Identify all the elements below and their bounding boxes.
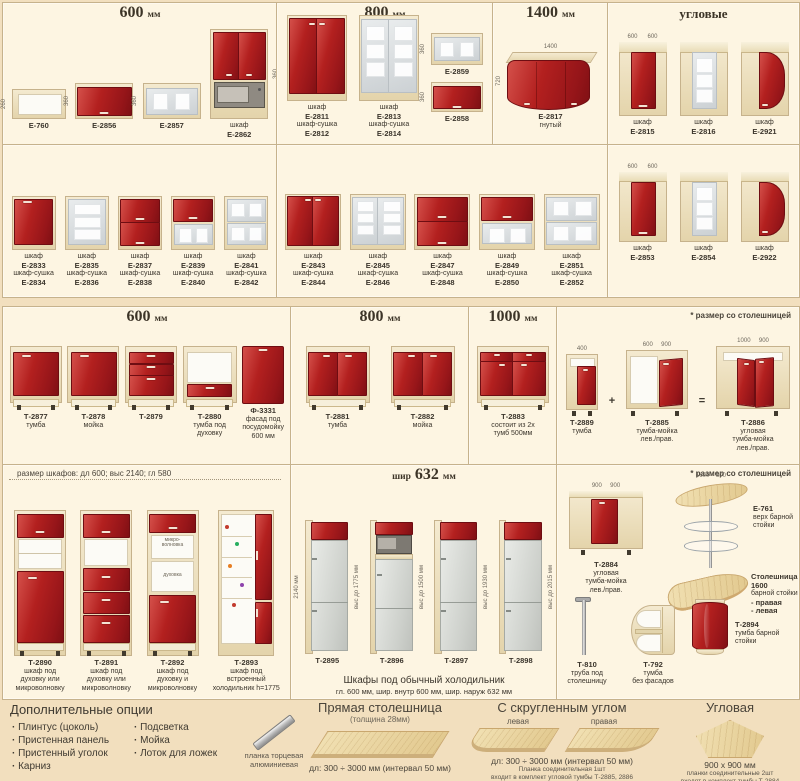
Е-2862-label: шкафЕ-2862 [227,122,251,140]
panel-header-bar-corner: * размер со столешницей [557,466,799,478]
panel-header-base-1000: 1000 мм [469,308,557,326]
Е-2851-image [544,194,600,250]
panel-header-wall-600: 600 мм [3,4,277,22]
Т-2878-image [67,346,119,410]
straight-countertop-range: дл: 300 ÷ 3000 мм (интервал 50 мм) [300,763,460,773]
Т-2894-image [691,599,729,655]
catalog-item-Т-2886: 1000 900Т-2886угловаятумба-мойкалев./пра… [716,346,790,455]
Е-2835-label: шкафЕ-2835шкаф-сушкаЕ-2836 [67,253,108,289]
Е-2849-image [479,194,535,250]
catalog-item-Е-2817: 7201400Е-2817гнутый [507,52,595,131]
catalog-item-Е-2816: шкафЕ-2816 [680,42,728,137]
Т-792-label: Т-792тумбабез фасадов [623,661,683,687]
Е-2843-label: шкафЕ-2843шкаф-сушкаЕ-2844 [293,253,334,289]
catalog-item-Е-2839: шкафЕ-2839шкаф-сушкаЕ-2840 [171,196,215,289]
Т-2879-image [125,346,177,410]
panel-wall-800: 800 ммшкафЕ-2811шкаф-сушкаЕ-2812шкафЕ-28… [276,2,494,146]
Т-2881-image [306,346,370,410]
Т-2896-label: Т-2896 [380,657,404,667]
Е-2858-image: 360 [431,82,483,112]
Е-2837-image [118,196,162,250]
panel-fridge-cabinets: шир 632 мм2140 ммвыс до 1775 ммТ-2895выс… [290,464,558,700]
panel-wall-1400: 1400 мм7201400Е-2817гнутый [492,2,609,146]
catalog-item-Е-760: 260Е-760 [12,89,66,140]
panel-header-base-800: 800 мм [291,308,469,326]
Т-2877-image [10,346,62,410]
corner-countertop-note2: входят в комплект тумбы Т-2884 [664,778,796,781]
catalog-item-Е-2851: шкафЕ-2851шкаф-сушкаЕ-2852 [544,194,600,289]
Е-2843-image [285,194,341,250]
Т-810-image [573,597,593,655]
corner-countertop-title: Угловая [664,700,796,715]
Е-2837-label: шкафЕ-2837шкаф-сушкаЕ-2838 [120,253,161,289]
Е-2862-image: 360 [210,29,268,119]
Е-2841-image [224,196,268,250]
Т-2880-label: Т-2880тумба поддуховку [193,413,226,441]
Т-2891-label: Т-2891шкаф поддуховку илимикроволновку [82,659,131,695]
Е-2815-label: шкафЕ-2815 [630,119,654,137]
Т-2884-image: 900 900 [569,491,643,555]
catalog-page: Дополнительные опции Плинтус (цоколь)При… [0,0,800,781]
panel-corner-row2: 600 600шкафЕ-2853шкафЕ-2854шкафЕ-2922 [607,144,800,298]
Т-810-label: Т-810труба подстолешницу [559,661,615,687]
bottom-options-strip: Дополнительные опции Плинтус (цоколь)При… [0,700,800,781]
Е-2847-image [414,194,470,250]
rounded-left-countertop-image [465,728,560,752]
panel-base-600: 600 ммТ-2877тумбаТ-2878мойкаТ-2879Т-2880… [2,306,292,466]
Т-2893-label: Т-2893шкаф подвстроенныйхолодильник h=17… [213,659,280,695]
Т-2879-label: Т-2879 [139,413,163,441]
catalog-item-Е-2857: 360Е-2857 [143,83,201,140]
Е-760-image: 260 [12,89,66,119]
catalog-item-Т-2898: выс до 2015 ммТ-2898 [499,520,543,667]
catalog-item-Т-2881: Т-2881тумба [306,346,370,441]
Е-760-label: Е-760 [29,122,49,140]
Т-2898-image: выс до 2015 мм [499,520,543,654]
Т-2897-label: Т-2897 [444,657,468,667]
panel-wall-800-row2: шкафЕ-2843шкаф-сушкаЕ-2844шкафЕ-2845шкаф… [276,144,609,298]
catalog-item-Т-2889: 400Т-2889тумба [566,354,598,455]
Е-761-label: Е-761верх барнойстойки [753,505,797,531]
rounded-countertop-section: С скругленным углом левая правая дл: 300… [462,700,662,781]
catalog-item-Е-2853: 600 600шкафЕ-2853 [619,172,667,263]
panel-base-800: 800 ммТ-2881тумбаТ-2882мойка [290,306,470,466]
Е-2816-image [680,42,728,116]
Т-2897-image: выс до 1930 мм [434,520,478,654]
catalog-item-Е-2858: 360Е-2858 [431,82,483,124]
catalog-item-Е-2845: шкафЕ-2845шкаф-сушкаЕ-2846 [350,194,406,289]
rounded-left-label: левая [507,717,529,726]
Е-2854-image [680,172,728,242]
Т-2885-image: 600 900 [626,350,688,416]
catalog-item-Е-2849: шкафЕ-2849шкаф-сушкаЕ-2850 [479,194,535,289]
panel-header-corner-base: * размер со столешницей [557,308,799,320]
corner-countertop-image [696,720,764,758]
catalog-item-Е-2856: 360Е-2856 [75,83,133,140]
panel-bar-corner: * размер со столешницей900 900Т-2884угло… [556,464,800,700]
Т-2886-label: Т-2886угловаятумба-мойкалев./прав. [732,419,773,455]
catalog-item-Е-2813: шкафЕ-2813шкаф-сушкаЕ-2814 [359,15,419,140]
catalog-item-Т-2880: Т-2880тумба поддуховку [183,346,237,441]
Т-2885-label: Т-2885тумба-мойкалев./прав. [636,419,677,455]
Е-2856-label: Е-2856 [92,122,116,140]
Ф-3331-image [242,346,284,404]
Т-792-image [631,605,675,655]
Е-2841-label: шкафЕ-2841шкаф-сушкаЕ-2842 [226,253,267,289]
Е-2835-image [65,196,109,250]
Е-2811-image [287,15,347,101]
panel-header-wall-corner: угловые [608,4,799,22]
Е-2813-image [359,15,419,101]
Т-2898-label: Т-2898 [509,657,533,667]
panel-header-base-600: 600 мм [3,308,291,326]
catalog-item-Т-2883: Т-2883состоит из 2хтумб 500мм [477,346,549,441]
alu-strip-image [248,714,300,750]
Е-2922-label: шкафЕ-2922 [752,245,776,263]
corner-countertop-note1: планки соединительные 2шт [664,770,796,778]
catalog-item-Е-2859: 360Е-2859 [431,33,483,77]
Е-2815-image: 600 600 [619,42,667,116]
extras-column-2: ПодсветкаМойкаЛоток для ложек [134,721,217,760]
catalog-item-Е-2843: шкафЕ-2843шкаф-сушкаЕ-2844 [285,194,341,289]
panel-tall-cabinets: размер шкафов: дл 600; выс 2140; гл 580Т… [2,464,292,700]
catalog-item-Т-2896: выс до 1500 ммТ-2896 [370,520,414,667]
Е-2816-label: шкафЕ-2816 [691,119,715,137]
catalog-item-Е-2854: шкафЕ-2854 [680,172,728,263]
Е-2817-label: Е-2817гнутый [538,113,562,131]
option-item: Плинтус (цоколь) [12,721,109,734]
catalog-item-Т-2877: Т-2877тумба [10,346,62,441]
Т-2882-label: Т-2882мойка [411,413,435,441]
Е-2859-label: Е-2859 [445,68,469,77]
panel-wall-600: 600 мм260Е-760360Е-2856360Е-2857360шкафЕ… [2,2,278,146]
extras-title: Дополнительные опции [10,702,153,717]
catalog-item-Т-2879: Т-2879 [125,346,177,441]
catalog-item-Т-2892: микро-волновкадуховкаТ-2892шкаф поддухов… [147,510,199,695]
Т-2883-label: Т-2883состоит из 2хтумб 500мм [491,413,535,441]
Е-2853-label: шкафЕ-2853 [630,245,654,263]
catalog-item-Т-2882: Т-2882мойка [391,346,455,441]
straight-countertop-image [311,731,450,758]
catalog-item-Е-2847: шкафЕ-2847шкаф-сушкаЕ-2848 [414,194,470,289]
Е-2839-image [171,196,215,250]
option-item: Карниз [12,760,109,773]
Т-2883-image [477,346,549,410]
Т-2884-label: Т-2884угловаятумба-мойкалев./прав. [565,561,647,595]
Т-2890-label: Т-2890шкаф поддуховку илимикроволновку [16,659,65,695]
option-item: Мойка [134,734,217,747]
rounded-right-countertop-image [565,728,660,752]
rounded-right-label: правая [591,717,617,726]
separator-=: = [699,395,705,407]
straight-countertop-subtitle: (толщина 28мм) [300,715,460,724]
item-stack: 360Е-2859360Е-2858 [431,33,483,124]
Т-2878-label: Т-2878мойка [82,413,106,441]
panel-corner-base: * размер со столешницей400Т-2889тумба+60… [556,306,800,466]
panel-header-tall-cabinets: размер шкафов: дл 600; выс 2140; гл 580 [9,466,281,480]
option-item: Пристенный уголок [12,747,109,760]
counter_oval-label: Столешница 1600барной стойки- правая- ле… [751,573,799,616]
Е-2833-label: шкафЕ-2833шкаф-сушкаЕ-2834 [13,253,54,289]
Е-2845-image [350,194,406,250]
option-item: Лоток для ложек [134,747,217,760]
Т-2892-image: микро-волновкадуховка [147,510,199,656]
catalog-item-Т-2891: Т-2891шкаф поддуховку илимикроволновку [80,510,132,695]
Е-2859-image: 360 [431,33,483,65]
rounded-countertop-note2: входит в комплект угловой тумбы Т-2885, … [462,774,662,781]
catalog-item-Е-2811: шкафЕ-2811шкаф-сушкаЕ-2812 [287,15,347,140]
catalog-item-Т-2895: 2140 ммвыс до 1775 ммТ-2895 [305,520,349,667]
Т-2877-label: Т-2877тумба [24,413,48,441]
extras-column-1: Плинтус (цоколь)Пристенная панельПристен… [12,721,109,773]
panel-base-1000: 1000 ммТ-2883состоит из 2хтумб 500мм [468,306,558,466]
Т-2890-image [14,510,66,656]
option-item: Подсветка [134,721,217,734]
Е-2921-label: шкафЕ-2921 [752,119,776,137]
Е-2857-label: Е-2857 [160,122,184,140]
Е-2853-image: 600 600 [619,172,667,242]
Т-2893-image [218,510,274,656]
corner-countertop-section: Угловая 900 х 900 мм планки соединительн… [664,700,796,781]
catalog-item-Е-2833: шкафЕ-2833шкаф-сушкаЕ-2834 [12,196,56,289]
rounded-countertop-note1: Планка соединительная 1шт [462,766,662,774]
Т-2889-image: 400 [566,354,598,416]
catalog-item-Т-2893: Т-2893шкаф подвстроенныйхолодильник h=17… [213,510,280,695]
Т-2889-label: Т-2889тумба [570,419,594,455]
panel-wall-600-row2: шкафЕ-2833шкаф-сушкаЕ-2834шкафЕ-2835шкаф… [2,144,278,298]
Е-2833-image [12,196,56,250]
Е-2847-label: шкафЕ-2847шкаф-сушкаЕ-2848 [422,253,463,289]
catalog-item-Т-2890: Т-2890шкаф поддуховку илимикроволновку [14,510,66,695]
Т-2886-image: 1000 900 [716,346,790,416]
Е-2839-label: шкафЕ-2839шкаф-сушкаЕ-2840 [173,253,214,289]
catalog-item-Т-2885: 600 900Т-2885тумба-мойкалев./прав. [626,350,688,455]
Е-2811-label: шкафЕ-2811шкаф-сушкаЕ-2812 [297,104,338,140]
Е-2922-image [741,172,789,242]
catalog-item-Е-2921: шкафЕ-2921 [741,42,789,137]
Е-2858-label: Е-2858 [445,115,469,124]
Е-2849-label: шкафЕ-2849шкаф-сушкаЕ-2850 [487,253,528,289]
catalog-item-Е-2837: шкафЕ-2837шкаф-сушкаЕ-2838 [118,196,162,289]
Е-2856-image: 360 [75,83,133,119]
catalog-item-Ф-3331: Ф-3331фасад подпосудомойку600 мм [242,346,284,441]
rounded-countertop-title: С скругленным углом [462,700,662,715]
panel-wall-corner: угловые600 600шкафЕ-2815шкафЕ-2816шкафЕ-… [607,2,800,146]
Т-2895-label: Т-2895 [315,657,339,667]
catalog-item-Е-2841: шкафЕ-2841шкаф-сушкаЕ-2842 [224,196,268,289]
catalog-item-Е-2862: 360шкафЕ-2862 [210,29,268,140]
Е-2857-image: 360 [143,83,201,119]
Т-2896-image: выс до 1500 мм [370,520,414,654]
rounded-countertop-range: дл: 300 ÷ 3000 мм (интервал 50 мм) [462,756,662,766]
Е-2817-image: 7201400 [507,52,595,110]
straight-countertop-section: Прямая столешница (толщина 28мм) дл: 300… [300,700,460,773]
Е-2845-label: шкафЕ-2845шкаф-сушкаЕ-2846 [358,253,399,289]
corner-countertop-size: 900 х 900 мм [664,760,796,770]
Е-2854-label: шкафЕ-2854 [691,245,715,263]
Е-2851-label: шкафЕ-2851шкаф-сушкаЕ-2852 [551,253,592,289]
Т-2895-image: 2140 ммвыс до 1775 мм [305,520,349,654]
Ф-3331-label: Ф-3331фасад подпосудомойку600 мм [242,407,284,441]
panel-footnote-fridge-cabinets: Шкафы под обычный холодильникгл. 600 мм,… [293,675,555,696]
panel-header-fridge-cabinets: шир 632 мм [291,466,557,484]
option-item: Пристенная панель [12,734,109,747]
catalog-item-Е-2815: 600 600шкафЕ-2815 [619,42,667,137]
Е-2921-image [741,42,789,116]
catalog-item-Е-2835: шкафЕ-2835шкаф-сушкаЕ-2836 [65,196,109,289]
catalog-item-Т-2897: выс до 1930 ммТ-2897 [434,520,478,667]
Е-761-image: 1600 500 [673,481,749,569]
Т-2880-image [183,346,237,410]
Т-2882-image [391,346,455,410]
Т-2894-label: Т-2894тумба барнойстойки [735,621,797,647]
panel-header-wall-1400: 1400 мм [493,4,608,22]
Е-2813-label: шкафЕ-2813шкаф-сушкаЕ-2814 [369,104,410,140]
Т-2892-label: Т-2892шкаф поддуховку имикроволновку [148,659,197,695]
catalog-item-Е-2922: шкафЕ-2922 [741,172,789,263]
straight-countertop-title: Прямая столешница [300,700,460,715]
Т-2881-label: Т-2881тумба [326,413,350,441]
Т-2891-image [80,510,132,656]
catalog-item-Т-2878: Т-2878мойка [67,346,119,441]
separator-+: + [609,395,615,407]
